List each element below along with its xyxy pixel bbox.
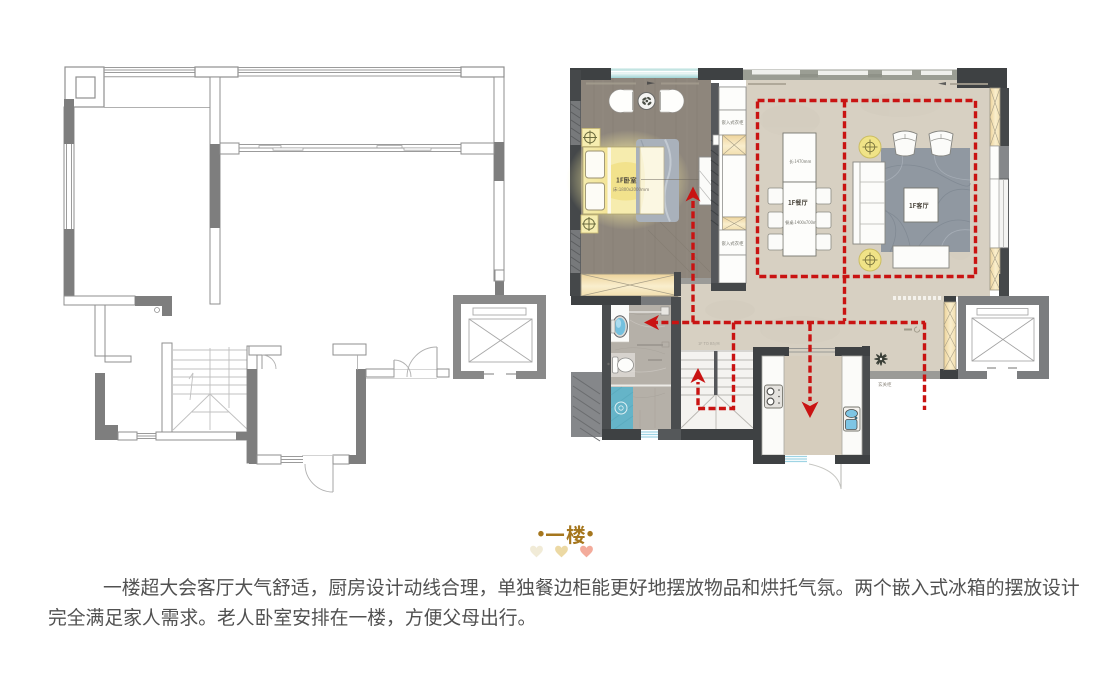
svg-text:嵌入式衣柜: 嵌入式衣柜	[722, 240, 745, 247]
svg-text:餐桌:1400x700mm: 餐桌:1400x700mm	[785, 219, 821, 226]
svg-text:长:1470mm: 长:1470mm	[789, 158, 812, 165]
svg-text:1F卧室: 1F卧室	[616, 175, 637, 185]
svg-text:床:1800x2000mm: 床:1800x2000mm	[613, 186, 649, 193]
svg-text:玄关柜: 玄关柜	[878, 381, 892, 388]
svg-text:1F客厅: 1F客厅	[909, 201, 929, 210]
svg-text:嵌入式衣柜: 嵌入式衣柜	[722, 119, 745, 126]
svg-text:1F TO B5/M: 1F TO B5/M	[698, 341, 720, 347]
svg-text:1F餐厅: 1F餐厅	[788, 198, 808, 207]
